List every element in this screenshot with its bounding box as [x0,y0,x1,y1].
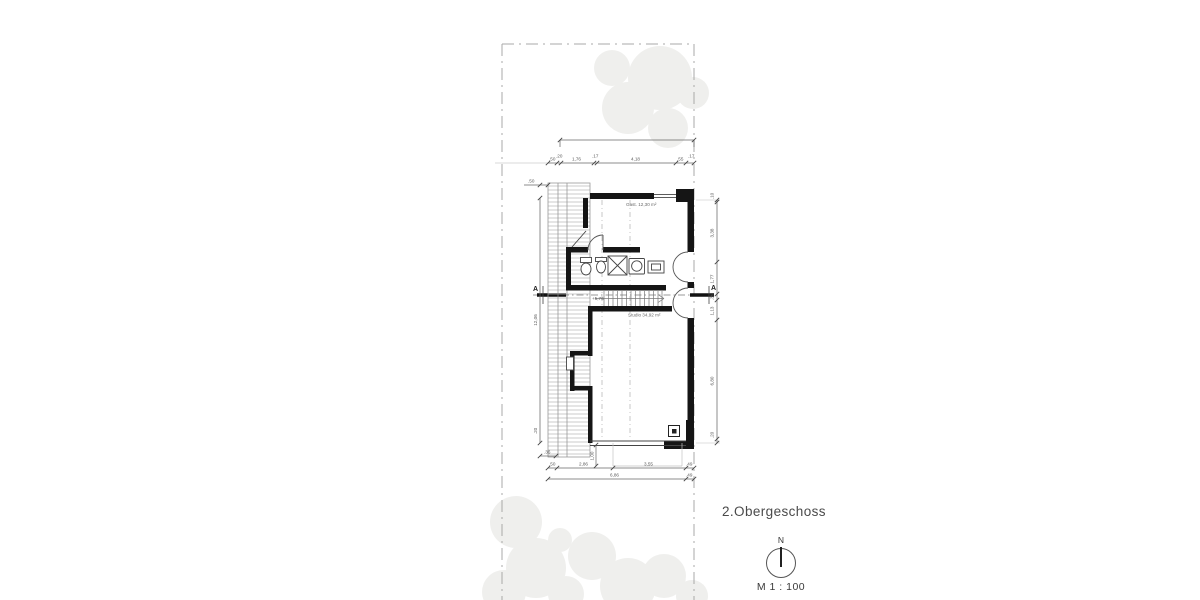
dim-value: 2,86 [579,462,588,467]
toilet-tank-icon [581,258,592,263]
dim-value: 3,38 [710,228,715,237]
dim-value: .36 [544,450,551,455]
section-label-right: A [711,285,716,292]
dim-value: 1,76 [572,157,581,162]
dim-value: 12,06 [533,314,538,326]
dim-value: .20 [710,431,715,438]
scale-label: M 1 : 100 [757,581,805,593]
stair-level-label: +5,76 [592,296,604,301]
dim-value: .50 [549,157,556,162]
dim-value: .36 [710,293,715,300]
dim-value: 1,13 [710,306,715,315]
dim-value: 4,18 [631,157,640,162]
dryer-icon [648,261,664,273]
floor-plan-drawing: A A [0,0,1200,600]
dim-value: 1,77 [710,274,715,283]
sink-icon [597,261,606,273]
dim-value: 3,55 [644,462,653,467]
roof-lines [602,200,630,440]
shower-icon [608,256,627,275]
dim-value: .17 [592,154,599,159]
north-indicator: N [767,535,796,578]
column-symbol [669,426,680,437]
room-label-gast: Gast. 12,30 m² [626,202,657,207]
dim-chain-right: .10 3,38 1,77 .36 1,13 6,80 .20 [696,192,720,445]
dim-value: 6,86 [610,473,619,478]
staircase [595,291,664,306]
dim-value: .17 [688,154,695,159]
dim-value: .50 [528,179,535,184]
drawing-sheet: A A [0,0,1200,600]
dim-value: .49 [686,473,693,478]
dim-value: .50 [549,462,556,467]
north-label: N [778,535,784,545]
dim-value: .55 [677,157,684,162]
dim-value: .49 [686,462,693,467]
dim-value: .20 [556,154,563,159]
plan-title: 2.Obergeschoss [722,504,826,519]
section-label-left: A [533,286,538,293]
door-swing-upper [673,252,688,282]
dim-value: .20 [533,427,538,434]
dim-chain-top: .50 .20 1,76 .17 4,18 .55 .17 [495,154,696,166]
door-swing-lower [673,288,688,318]
washer-icon [629,259,645,275]
room-label-studio: Studio 34,92 m² [628,313,661,318]
dim-value: 6,80 [710,376,715,385]
dim-value: 1,00 [590,451,595,460]
dim-value: .10 [710,192,715,199]
background-trees [482,46,709,600]
toilet-icon [581,263,591,275]
bathroom-fixtures [581,256,665,275]
